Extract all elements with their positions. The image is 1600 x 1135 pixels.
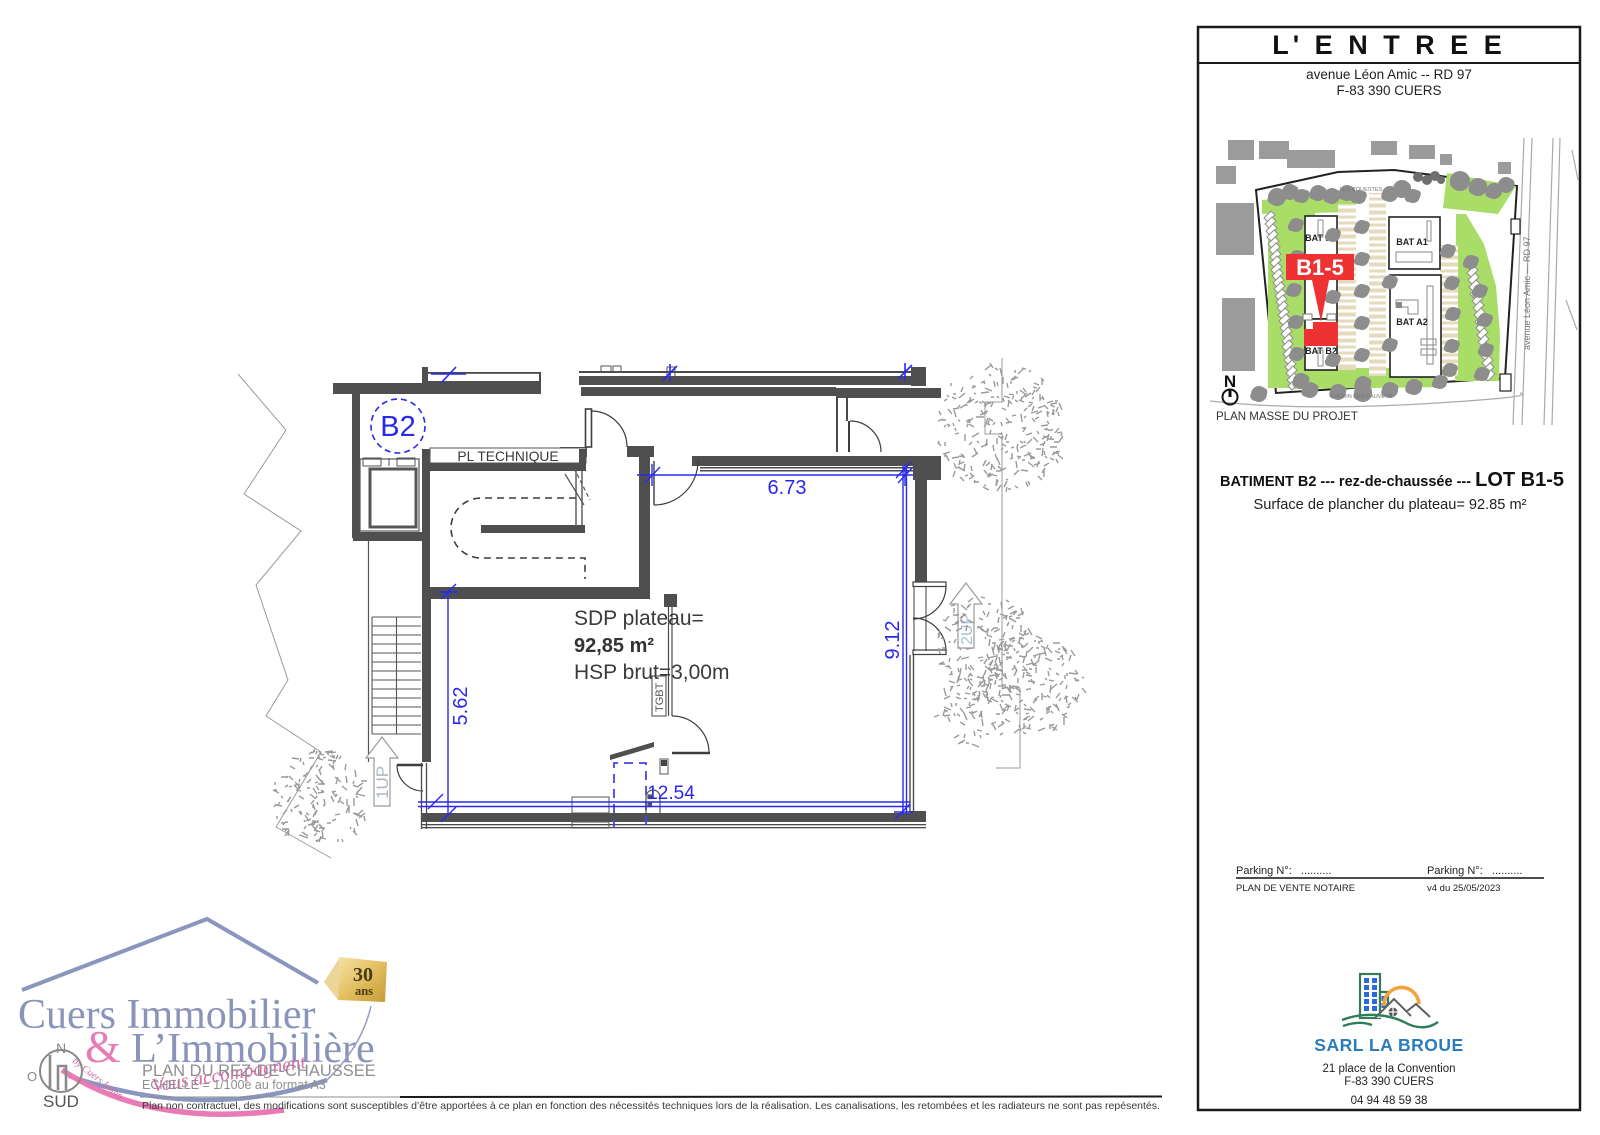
- svg-text:SUD: SUD: [43, 1092, 79, 1111]
- svg-text:Parking N°: ..........: Parking N°: ..........: [1236, 865, 1331, 877]
- svg-text:O: O: [27, 1069, 37, 1084]
- svg-text:LES COUESTES: LES COUESTES: [1340, 187, 1383, 193]
- svg-text:Surface de plancher du plateau: Surface de plancher du plateau= 92.85 m²: [1253, 497, 1526, 513]
- svg-text:5.62: 5.62: [450, 687, 472, 726]
- svg-text:BAT A2: BAT A2: [1396, 317, 1428, 327]
- svg-text:6.73: 6.73: [768, 477, 807, 499]
- svg-text:HSP brut=3,00m: HSP brut=3,00m: [574, 661, 729, 684]
- svg-text:1UP: 1UP: [373, 766, 392, 799]
- svg-text:B2: B2: [380, 411, 415, 443]
- svg-text:TGBT: TGBT: [654, 682, 666, 712]
- svg-text:N: N: [56, 1040, 66, 1056]
- svg-text:B1-5: B1-5: [1296, 255, 1344, 280]
- svg-text:SDP plateau=: SDP plateau=: [574, 607, 704, 630]
- svg-text:PLAN MASSE DU PROJET: PLAN MASSE DU PROJET: [1216, 411, 1358, 423]
- svg-text:SARL LA BROUE: SARL LA BROUE: [1314, 1035, 1463, 1055]
- svg-text:9.12: 9.12: [882, 621, 904, 660]
- svg-text:ECHELLE = 1/100e au format A3: ECHELLE = 1/100e au format A3: [142, 1078, 326, 1092]
- svg-text:2UP: 2UP: [959, 614, 976, 645]
- svg-text:avenue Léon Amic -- RD 97: avenue Léon Amic -- RD 97: [1306, 67, 1472, 82]
- svg-text:PLAN DE VENTE NOTAIRE: PLAN DE VENTE NOTAIRE: [1236, 883, 1355, 894]
- svg-text:92,85 m²: 92,85 m²: [574, 635, 654, 657]
- svg-text:ans: ans: [355, 984, 373, 998]
- svg-text:F-83 390 CUERS: F-83 390 CUERS: [1336, 83, 1441, 98]
- svg-text:N: N: [1224, 372, 1236, 391]
- svg-text:21 place de la Convention: 21 place de la Convention: [1323, 1063, 1456, 1075]
- svg-text:04 94 48 59 38: 04 94 48 59 38: [1351, 1095, 1428, 1107]
- svg-text:Parking N°: ..........: Parking N°: ..........: [1427, 865, 1522, 877]
- svg-text:CHEMIN DES CAUVETS: CHEMIN DES CAUVETS: [1330, 394, 1392, 400]
- svg-text:Plan non contractuel, des modi: Plan non contractuel, des modifications …: [142, 1100, 1160, 1112]
- svg-text:F-83 390 CUERS: F-83 390 CUERS: [1344, 1076, 1434, 1088]
- svg-text:v4 du 25/05/2023: v4 du 25/05/2023: [1427, 883, 1500, 894]
- svg-text:avenue Léon Amic — RD 97: avenue Léon Amic — RD 97: [1522, 236, 1532, 350]
- svg-text:30: 30: [353, 964, 373, 986]
- svg-text:12.54: 12.54: [647, 783, 695, 804]
- svg-text:BAT A1: BAT A1: [1396, 237, 1428, 247]
- svg-text:L' E N T R E E: L' E N T R E E: [1272, 30, 1505, 60]
- svg-text:PL TECHNIQUE: PL TECHNIQUE: [457, 449, 558, 464]
